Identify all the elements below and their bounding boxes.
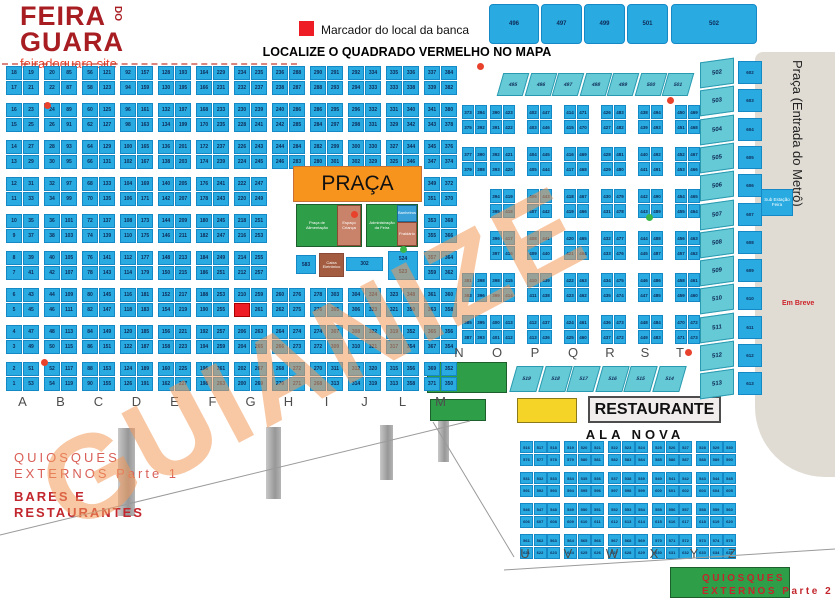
facility-2-sub-bottom: Fraldário xyxy=(397,222,417,246)
quiosques-2-line1: QUIOSQUES xyxy=(702,573,833,586)
stall-cell-583: 583 xyxy=(296,255,316,274)
quiosques-2-label: QUIOSQUES EXTERNOS Parte 2 xyxy=(702,573,833,598)
facility-1-sub-label: Espaço Criança xyxy=(337,205,361,246)
red-dot xyxy=(477,63,484,70)
facility-1-label: Praça de Alimentação xyxy=(297,205,337,246)
red-dot xyxy=(41,359,48,366)
green-dot xyxy=(400,246,407,253)
facility-2-label: Administração da Feira xyxy=(367,205,397,246)
guide-lines xyxy=(0,0,835,600)
green-dot xyxy=(646,214,653,221)
stall-cell-302: 302 xyxy=(346,257,383,271)
red-dot xyxy=(667,97,674,104)
stall-523: 523 xyxy=(399,269,407,275)
feira-map: GUIANIZE FEIRA DO GUARA feiradoguara.sit… xyxy=(0,0,835,600)
red-dot xyxy=(44,102,51,109)
red-dot xyxy=(351,211,358,218)
stall-524: 524 xyxy=(399,256,407,262)
red-dot xyxy=(685,349,692,356)
stall-cell-524-523: 524 523 xyxy=(388,251,418,280)
praca-banner: PRAÇA xyxy=(293,166,422,202)
atm-box: Caixa Eletrônico xyxy=(319,253,344,277)
facility-block-2: Administração da Feira Banheiros Fraldár… xyxy=(366,204,418,247)
facility-2-sub-top: Banheiros xyxy=(397,205,417,222)
quiosques-2-line2: EXTERNOS Parte 2 xyxy=(702,586,833,599)
